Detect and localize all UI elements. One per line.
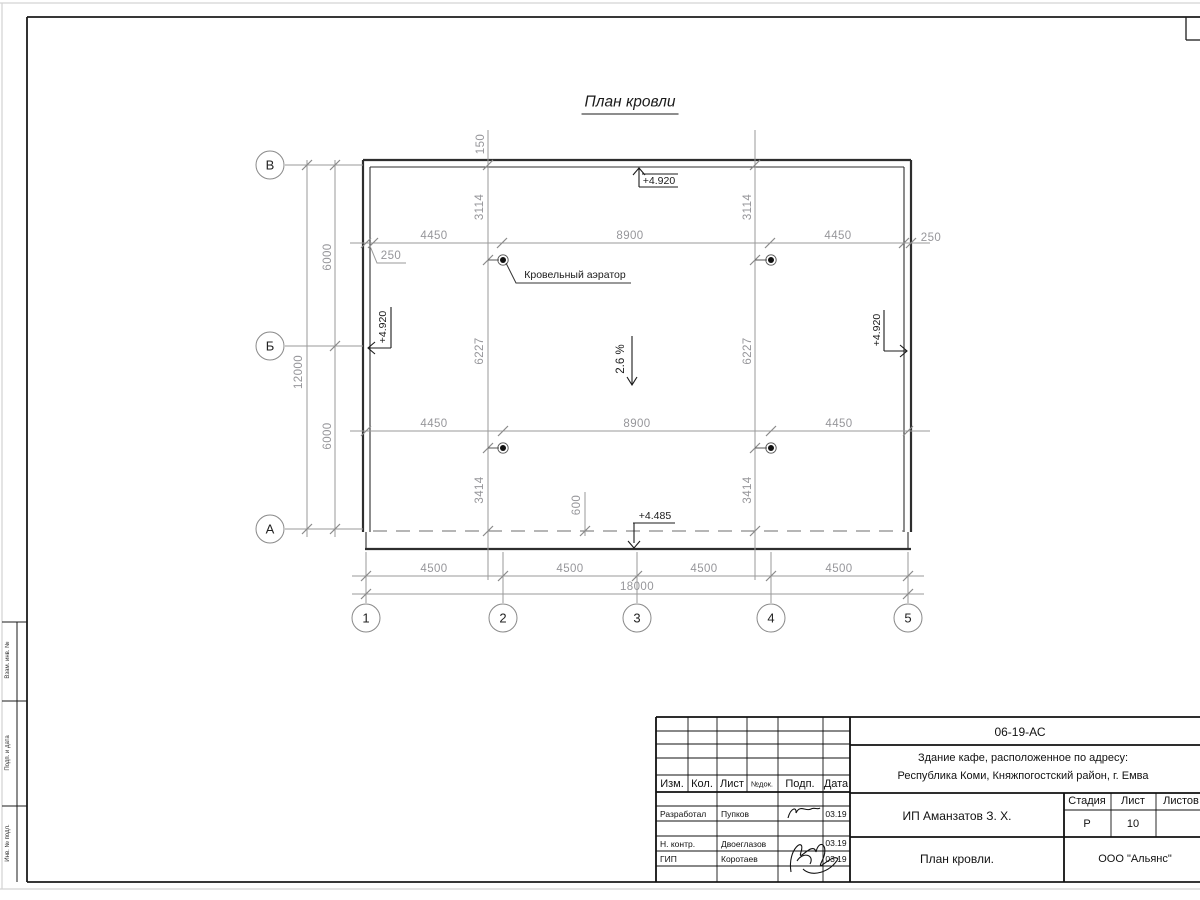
tb-project-line2: Республика Коми, Княжпогостский район, г… — [897, 770, 1148, 782]
tb-role: ГИП — [660, 854, 677, 864]
tb-header-data: Дата — [824, 778, 848, 790]
axis-bubble-row: В — [256, 151, 285, 180]
dim-label: 4500 — [825, 563, 852, 575]
tb-name: Коротаев — [721, 854, 758, 864]
dim-label: 3114 — [474, 194, 486, 220]
axis-bubble-row: Б — [256, 332, 285, 361]
plan-linework — [0, 0, 1200, 900]
side-stamp-label: Инв. № подл. — [5, 824, 11, 861]
tb-header-list: Лист — [720, 778, 744, 790]
axis-letter: В — [266, 158, 275, 173]
dim-label: 8900 — [616, 230, 643, 242]
elevation-value-top: +4.920 — [643, 175, 675, 187]
dimension-ticks — [302, 160, 916, 599]
tb-role: Разработал — [660, 809, 706, 819]
dim-label: 4450 — [824, 230, 851, 242]
tb-sheet-label: Лист — [1121, 795, 1145, 807]
axis-bubble-col: 5 — [894, 604, 923, 633]
slope-arrow — [627, 336, 637, 385]
tb-header-izm: Изм. — [660, 778, 684, 790]
side-stamp-label: Взам. инв. № — [5, 641, 11, 678]
elevation-value-bottom: +4.485 — [639, 510, 671, 522]
dim-label: 6000 — [322, 422, 334, 449]
dim-total: 12000 — [293, 355, 305, 389]
tb-date: 03.19 — [825, 854, 846, 864]
dim-label: 4500 — [556, 563, 583, 575]
tb-header-podp: Подп. — [785, 778, 814, 790]
dimension-lines — [285, 130, 930, 603]
tb-header-kol: Кол. — [691, 778, 713, 790]
dim-label: 4450 — [825, 418, 852, 430]
dim-offset-right: 250 — [921, 232, 941, 244]
dim-label: 6000 — [322, 243, 334, 270]
dim-label: 4500 — [690, 563, 717, 575]
roof-outline — [363, 160, 911, 549]
tb-client: ИП Аманзатов З. Х. — [902, 809, 1011, 823]
dim-label: 3414 — [742, 476, 754, 503]
tb-stage-value: Р — [1083, 818, 1090, 830]
axis-number: 5 — [904, 611, 911, 626]
dim-label: 6227 — [474, 337, 486, 364]
axis-bubble-col: 4 — [757, 604, 786, 633]
tb-company: ООО "Альянс" — [1098, 853, 1172, 865]
tb-date: 03.19 — [825, 809, 846, 819]
axis-number: 3 — [633, 611, 640, 626]
dim-label: 4500 — [420, 563, 447, 575]
axis-bubble-col: 1 — [352, 604, 381, 633]
tb-stage-label: Стадия — [1068, 795, 1106, 807]
tb-role: Н. контр. — [660, 839, 695, 849]
axis-letter: Б — [266, 339, 275, 354]
axis-number: 1 — [362, 611, 369, 626]
tb-sheet-title: План кровли. — [920, 852, 994, 866]
tb-doc-number: 06-19-АС — [994, 725, 1045, 739]
dim-offset-bottom: 600 — [571, 495, 583, 515]
dim-label: 3414 — [474, 476, 486, 503]
dim-label: 4450 — [420, 418, 447, 430]
tb-date: 03.19 — [825, 838, 846, 848]
tb-project-line1: Здание кафе, расположенное по адресу: — [918, 752, 1128, 764]
elevation-value-right: +4.920 — [871, 314, 883, 346]
axis-number: 2 — [499, 611, 506, 626]
axis-bubble-col: 3 — [623, 604, 652, 633]
axis-number: 4 — [767, 611, 774, 626]
drawing-sheet: План кровли 4450 8900 4450 250 250 4450 … — [0, 0, 1200, 900]
dim-label: 4450 — [420, 230, 447, 242]
dim-offset-top: 150 — [475, 134, 487, 154]
tb-sheets-label: Листов — [1163, 795, 1199, 807]
dim-label: 3114 — [742, 194, 754, 220]
tb-name: Пупков — [721, 809, 749, 819]
elevation-marks — [368, 168, 907, 548]
tb-sheet-value: 10 — [1127, 818, 1139, 830]
tb-name: Двоеглазов — [721, 839, 766, 849]
side-stamp-label: Подп. и дата — [5, 735, 11, 770]
dim-label: 6227 — [742, 337, 754, 364]
axis-bubble-col: 2 — [489, 604, 518, 633]
tb-header-ndok: №док. — [751, 780, 773, 789]
axis-letter: А — [266, 522, 275, 537]
drawing-title: План кровли — [582, 94, 679, 115]
slope-label: 2.6 % — [615, 344, 627, 373]
dim-offset-left: 250 — [381, 250, 401, 262]
aerator-label: Кровельный аэратор — [524, 269, 626, 281]
dim-total: 18000 — [620, 581, 654, 593]
axis-bubble-row: А — [256, 515, 285, 544]
elevation-value-left: +4.920 — [377, 311, 389, 343]
corner-box — [1186, 17, 1200, 40]
dim-label: 8900 — [623, 418, 650, 430]
